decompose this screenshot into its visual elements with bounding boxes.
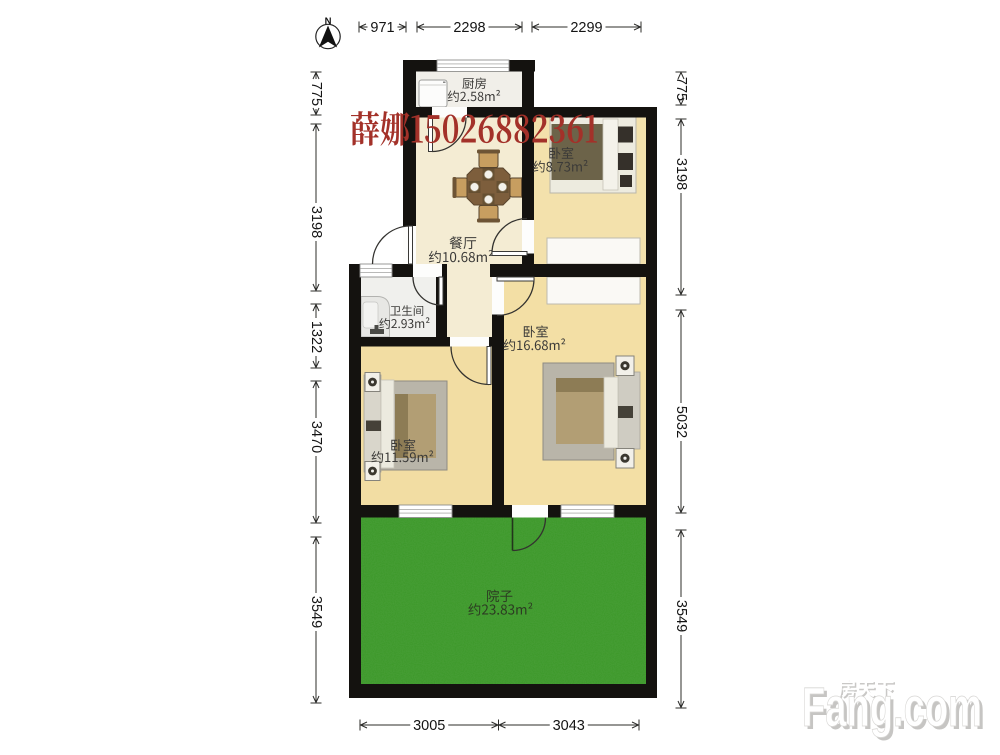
svg-text:971: 971 bbox=[370, 20, 394, 36]
svg-text:N: N bbox=[325, 16, 332, 27]
svg-text:1322: 1322 bbox=[308, 321, 324, 353]
svg-text:3470: 3470 bbox=[308, 421, 324, 453]
svg-text:775: 775 bbox=[308, 82, 324, 106]
svg-text:3198: 3198 bbox=[308, 206, 324, 238]
svg-text:775: 775 bbox=[673, 77, 689, 101]
svg-text:5032: 5032 bbox=[673, 406, 689, 438]
svg-text:3549: 3549 bbox=[308, 596, 324, 628]
svg-text:3005: 3005 bbox=[413, 718, 445, 734]
svg-text:2298: 2298 bbox=[453, 20, 485, 36]
svg-text:3198: 3198 bbox=[673, 158, 689, 190]
svg-text:2299: 2299 bbox=[570, 20, 602, 36]
svg-text:Fang.com: Fang.com bbox=[802, 675, 982, 738]
svg-text:3549: 3549 bbox=[673, 600, 689, 632]
svg-text:3043: 3043 bbox=[553, 718, 585, 734]
